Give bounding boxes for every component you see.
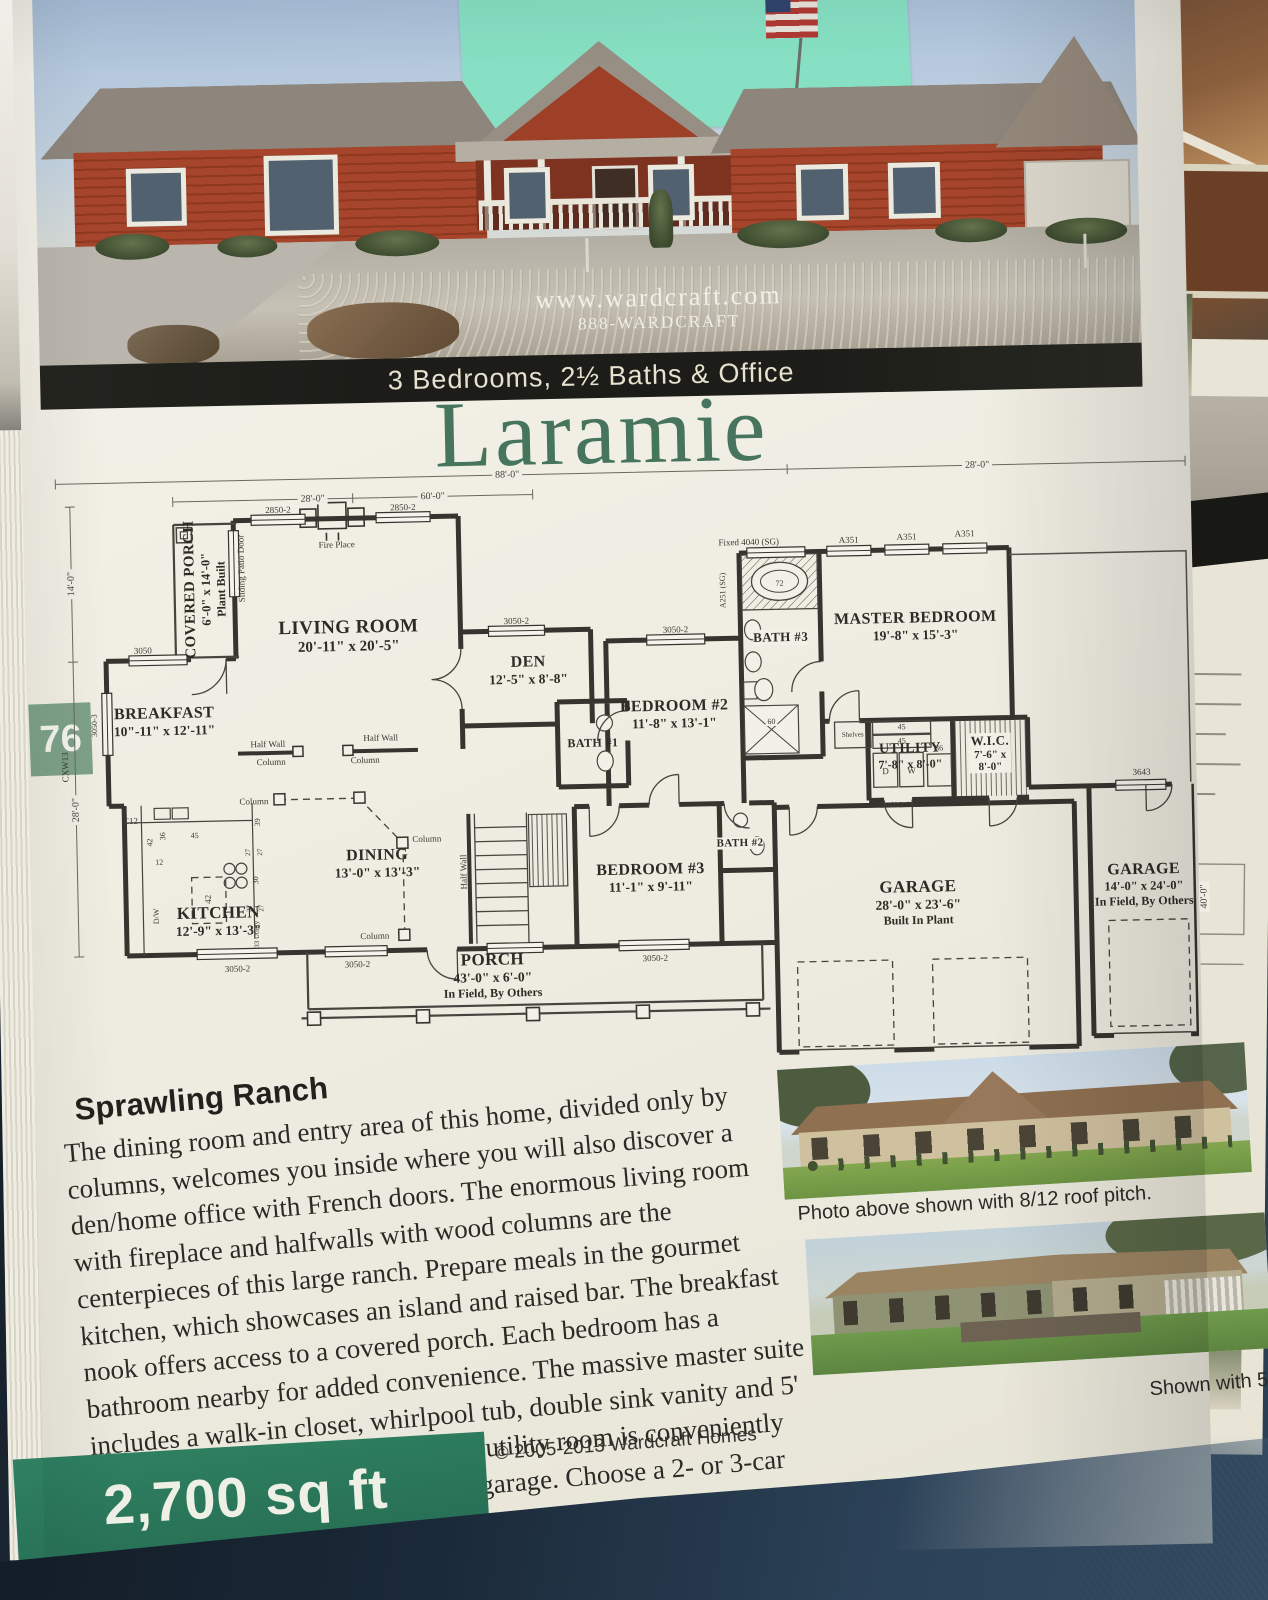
label-a351: A351 — [839, 535, 859, 545]
room-label-bedroom2: BEDROOM #2 11'-8" x 13'-1" — [620, 696, 729, 732]
label-27: 27 — [257, 905, 265, 912]
house-window — [504, 167, 551, 224]
dim-left-28: 28'-0" — [70, 795, 82, 825]
house-window — [126, 168, 187, 227]
label-shower-60: 60 — [765, 717, 777, 726]
sqft-value: 2,700 sq ft — [102, 1455, 390, 1537]
label-window-3643: 3643 — [1132, 767, 1150, 777]
label-half-wall: Half Wall — [458, 854, 469, 889]
house-window — [263, 154, 339, 236]
label-window-3050-2: 3050-2 — [503, 616, 529, 627]
label-window-2850: 2850-2 — [265, 505, 291, 516]
room-label-garage1: GARAGE 28'-0" x 23'-6" Built In Plant — [875, 876, 962, 929]
house-window — [796, 164, 849, 221]
room-label-den: DEN 12'-5" x 8'-8" — [489, 653, 568, 689]
label-c12: C12 — [123, 816, 138, 826]
label-island-42: 42 — [203, 895, 213, 904]
magazine-photo-scene: www.wardcraft.com 888-WARDCRAFT 3 Bedroo… — [0, 0, 1268, 1600]
house-window — [888, 162, 941, 219]
dim-seg-28: 28'-0" — [297, 493, 327, 505]
dim-right-28: 28'-0" — [962, 459, 992, 471]
main-house-photo: www.wardcraft.com 888-WARDCRAFT — [32, 0, 1141, 366]
label-column: Column — [351, 755, 380, 766]
label-42: 42 — [145, 838, 154, 846]
us-flag — [765, 0, 818, 38]
label-36: 36 — [935, 743, 943, 752]
room-label-dining: DINING 13'-0" x 13'-3" — [334, 846, 420, 882]
room-label-bath1: BATH #1 — [567, 735, 618, 751]
room-label-breakfast: BREAKFAST 10"-11" x 12'-11" — [113, 704, 215, 740]
dim-left-14: 14'-0" — [66, 569, 78, 599]
label-39: 39 — [253, 818, 262, 826]
dim-right-40: 40'-0" — [1198, 881, 1210, 911]
juniper — [648, 189, 673, 247]
label-36: 36 — [158, 832, 167, 840]
label-45: 45 — [898, 736, 906, 745]
photo-8-12-pitch — [777, 1042, 1252, 1200]
label-shelf-pole: Shelf & Pole — [879, 800, 921, 810]
label-cxw13: CXW13 — [60, 752, 71, 782]
label-washer: W — [907, 765, 916, 775]
label-27: 27 — [245, 905, 253, 912]
room-label-porch: PORCH 43'-0" x 6'-0" In Field, By Others — [443, 949, 543, 1002]
label-window-3050-2: 3050-2 — [643, 953, 669, 964]
label-a351: A351 — [954, 528, 974, 538]
room-label-garage2: GARAGE 14'-0" x 24'-0" In Field, By Othe… — [1094, 860, 1194, 910]
room-label-living: LIVING ROOM 20'-11" x 20'-5" — [278, 615, 419, 657]
label-fixed-window: Fixed 4040 (SG) — [718, 536, 779, 547]
room-label-master: MASTER BEDROOM 19'-8" x 15'-3" — [834, 608, 997, 645]
label-window-2850: 2850-2 — [390, 502, 416, 513]
sqft-banner: 2,700 sq ft — [13, 1432, 491, 1572]
label-fireplace: Fire Place — [318, 539, 354, 550]
label-sliding-door: Sliding Patio Door — [235, 535, 246, 603]
label-column: Column — [360, 931, 389, 942]
label-a251: A251 (SG) — [718, 573, 728, 609]
floor-plan: COVERED PORCH 6'-0" x 14'-0" Plant Built… — [87, 449, 1200, 1104]
label-45: 45 — [897, 722, 905, 731]
room-label-covered-porch: COVERED PORCH 6'-0" x 14'-0" Plant Built — [181, 520, 231, 659]
label-27: 27 — [256, 849, 264, 856]
label-a351: A351 — [896, 531, 916, 541]
room-label-bath3: BATH #3 — [753, 629, 808, 646]
label-30: 30 — [251, 876, 260, 884]
room-label-bath2: BATH #2 — [716, 837, 763, 850]
label-column: Column — [257, 757, 286, 768]
label-dryer: D — [882, 766, 889, 776]
label-half-wall: Half Wall — [363, 732, 398, 743]
room-label-bedroom3: BEDROOM #3 11'-1" x 9'-11" — [596, 860, 705, 896]
photo-5-12-pitch — [805, 1212, 1268, 1375]
dim-seg-60: 60'-0" — [417, 491, 447, 503]
boulder — [127, 324, 220, 366]
label-12: 12 — [155, 858, 163, 867]
label-dw: D/W — [152, 909, 161, 925]
label-column: Column — [412, 833, 441, 844]
label-window-3050-2: 3050-2 — [345, 959, 371, 970]
catalog-page: www.wardcraft.com 888-WARDCRAFT 3 Bedroo… — [12, 0, 1213, 1568]
flag-canton — [765, 0, 791, 12]
label-window-3050-2: 3050-2 — [663, 624, 689, 635]
label-33-utility: 33 Utility — [253, 921, 262, 948]
label-shelves: Shelves — [842, 731, 864, 739]
label-tub-72: 72 — [775, 579, 783, 588]
label-45: 45 — [191, 831, 199, 840]
label-window-3050-3: 3050-3 — [90, 714, 99, 737]
room-label-wic: W.I.C. 7'-6" x 8'-0" — [969, 732, 1012, 773]
label-window-3050: 3050 — [134, 645, 152, 655]
dim-overall: 88'-0" — [492, 469, 522, 481]
label-window-3050-2: 3050-2 — [225, 963, 251, 974]
side-photos-column: Photo above shown with 8/12 roof pitch. — [777, 1041, 1268, 1377]
label-27: 27 — [244, 849, 252, 856]
sp2-deck — [1164, 1276, 1242, 1314]
label-half-wall: Half Wall — [250, 739, 285, 750]
label-column: Column — [239, 796, 268, 807]
